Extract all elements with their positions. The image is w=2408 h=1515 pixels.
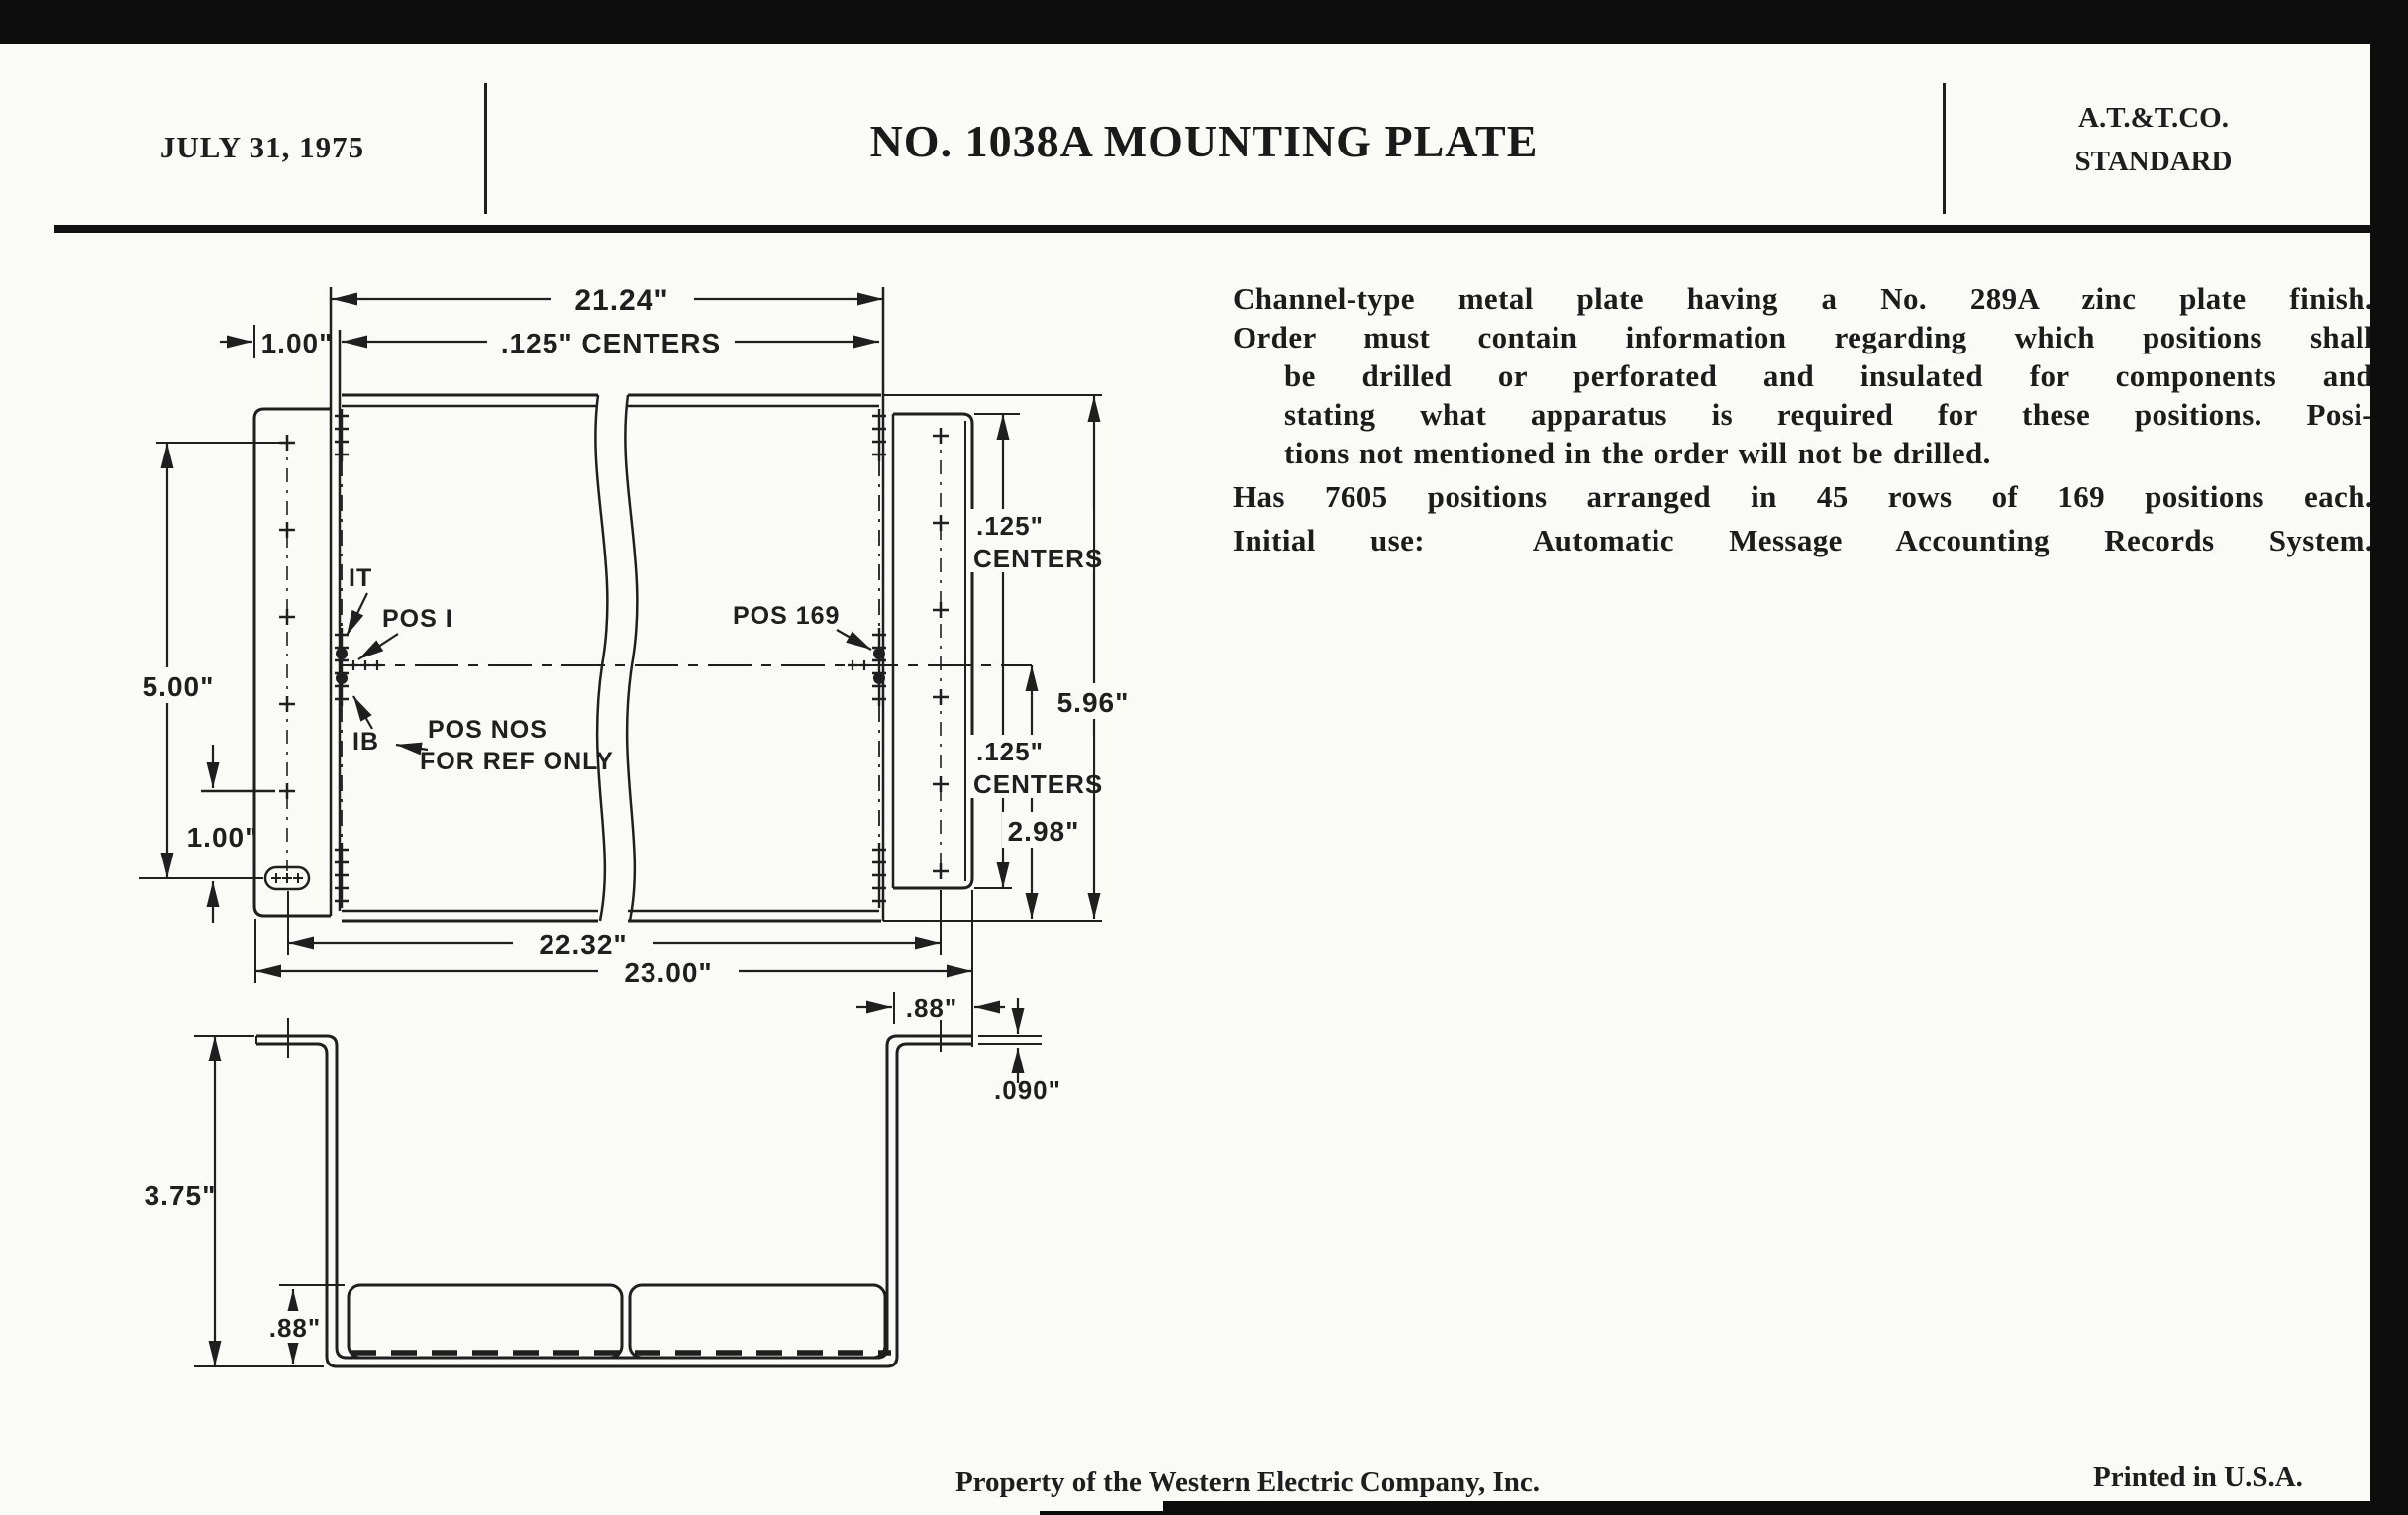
scan-border-right xyxy=(2370,0,2408,1515)
dim-label: .125" xyxy=(976,737,1044,766)
scan-border-bottom-thin xyxy=(1040,1511,1163,1515)
footer-property: Property of the Western Electric Company… xyxy=(921,1466,1574,1499)
scan-border-top xyxy=(0,0,2408,44)
rail-holes-left xyxy=(279,435,295,799)
dim-label: 23.00" xyxy=(624,958,712,988)
pos-note-line1: POS NOS xyxy=(428,716,548,744)
pos-label-1b: IB xyxy=(352,728,379,756)
technical-drawing: 21.24" .125" CENTERS 1.00" 5.00" 1.00" I… xyxy=(0,0,2408,1515)
break-line-right xyxy=(625,395,637,921)
dim-label: 22.32" xyxy=(539,929,627,959)
footer-printed: Printed in U.S.A. xyxy=(2069,1462,2327,1494)
scan-border-bottom xyxy=(1163,1501,2408,1515)
dim-label: .090" xyxy=(994,1075,1061,1105)
dim-label: 1.00" xyxy=(261,328,334,358)
channel-outer-contour xyxy=(256,1044,973,1366)
right-rail-outline xyxy=(893,414,972,888)
dim-label: 21.24" xyxy=(574,284,668,317)
dim-label: 2.98" xyxy=(1008,816,1080,847)
break-line-left xyxy=(595,395,607,921)
dim-label: 5.96" xyxy=(1057,687,1130,718)
plate-bar-right xyxy=(630,1285,885,1358)
dim-label: CENTERS xyxy=(973,769,1103,799)
channel-inner-contour xyxy=(256,1036,973,1358)
pos-label-pos169: POS 169 xyxy=(733,602,840,630)
plate-bar-left xyxy=(349,1285,622,1358)
spec-sheet-page: JULY 31, 1975 NO. 1038A MOUNTING PLATE A… xyxy=(0,0,2408,1515)
pos-label-pos1: POS I xyxy=(382,605,453,633)
pos-note-line2: FOR REF ONLY xyxy=(420,748,614,775)
dim-label: 5.00" xyxy=(143,671,215,702)
dim-label: 3.75" xyxy=(145,1180,217,1211)
dim-label: .88" xyxy=(269,1313,321,1343)
dim-label: 1.00" xyxy=(187,822,259,853)
dim-label: CENTERS xyxy=(973,544,1103,573)
dim-label: .125" CENTERS xyxy=(501,328,721,358)
profile-view xyxy=(194,992,1042,1366)
left-rail-outline xyxy=(254,409,331,916)
dim-label: .125" xyxy=(976,511,1044,541)
pos-label-1t: IT xyxy=(349,564,372,592)
dim-label: .88" xyxy=(906,993,957,1023)
